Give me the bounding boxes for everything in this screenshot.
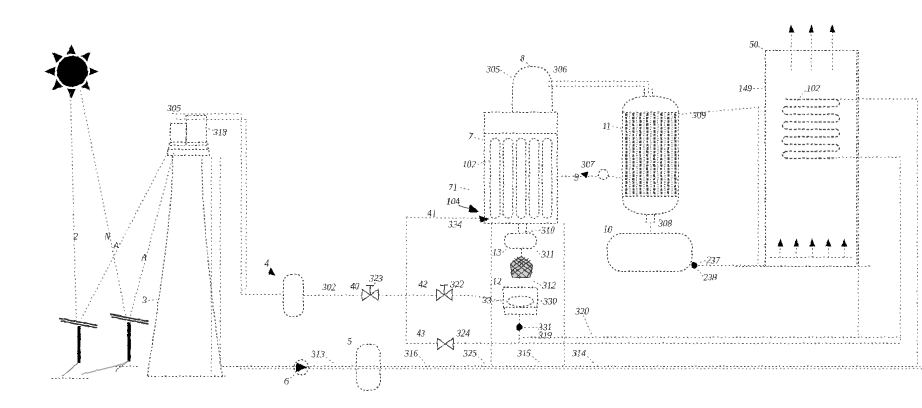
svg-text:12: 12 (492, 276, 502, 286)
svg-text:A: A (112, 240, 119, 250)
svg-text:306: 306 (552, 64, 567, 74)
svg-text:9: 9 (574, 172, 579, 182)
svg-text:322: 322 (449, 279, 464, 289)
svg-text:309: 309 (691, 110, 706, 120)
svg-text:318: 318 (212, 127, 227, 137)
svg-text:41: 41 (427, 208, 436, 218)
svg-text:330: 330 (542, 296, 557, 306)
svg-text:312: 312 (541, 280, 556, 290)
svg-text:320: 320 (574, 306, 589, 316)
svg-text:237: 237 (706, 255, 720, 265)
svg-text:71: 71 (448, 182, 457, 192)
svg-text:8: 8 (520, 53, 525, 63)
svg-text:310: 310 (540, 225, 555, 235)
svg-text:13: 13 (492, 247, 502, 257)
svg-text:N: N (103, 231, 111, 241)
svg-text:11: 11 (602, 121, 610, 131)
svg-text:42: 42 (418, 279, 428, 289)
svg-text:5: 5 (347, 336, 352, 346)
svg-text:43: 43 (416, 328, 426, 338)
svg-text:102: 102 (462, 159, 476, 169)
svg-text:305: 305 (166, 103, 181, 113)
svg-text:A: A (140, 252, 147, 262)
svg-text:50: 50 (749, 39, 759, 49)
svg-text:40: 40 (350, 281, 360, 291)
svg-text:313: 313 (310, 349, 325, 359)
svg-text:7: 7 (468, 131, 473, 141)
svg-text:325: 325 (462, 348, 477, 358)
svg-text:315: 315 (516, 348, 531, 358)
svg-text:149: 149 (738, 83, 752, 93)
svg-text:314: 314 (571, 348, 586, 358)
svg-text:324: 324 (455, 328, 470, 338)
svg-text:316: 316 (403, 348, 418, 358)
svg-text:307: 307 (580, 159, 595, 169)
svg-text:2: 2 (73, 231, 78, 241)
svg-text:308: 308 (657, 218, 672, 228)
svg-text:311: 311 (540, 249, 554, 259)
svg-text:3: 3 (141, 295, 147, 305)
svg-text:238: 238 (703, 272, 717, 282)
svg-text:10: 10 (603, 224, 613, 234)
svg-text:6: 6 (284, 376, 289, 386)
svg-text:302: 302 (321, 282, 336, 292)
svg-text:4: 4 (264, 258, 269, 268)
svg-text:33: 33 (481, 295, 492, 305)
svg-text:323: 323 (368, 273, 383, 283)
svg-text:104: 104 (446, 196, 460, 206)
svg-text:319: 319 (537, 330, 552, 340)
svg-text:305: 305 (485, 64, 500, 74)
svg-text:334: 334 (447, 219, 462, 229)
svg-text:102: 102 (806, 83, 820, 93)
